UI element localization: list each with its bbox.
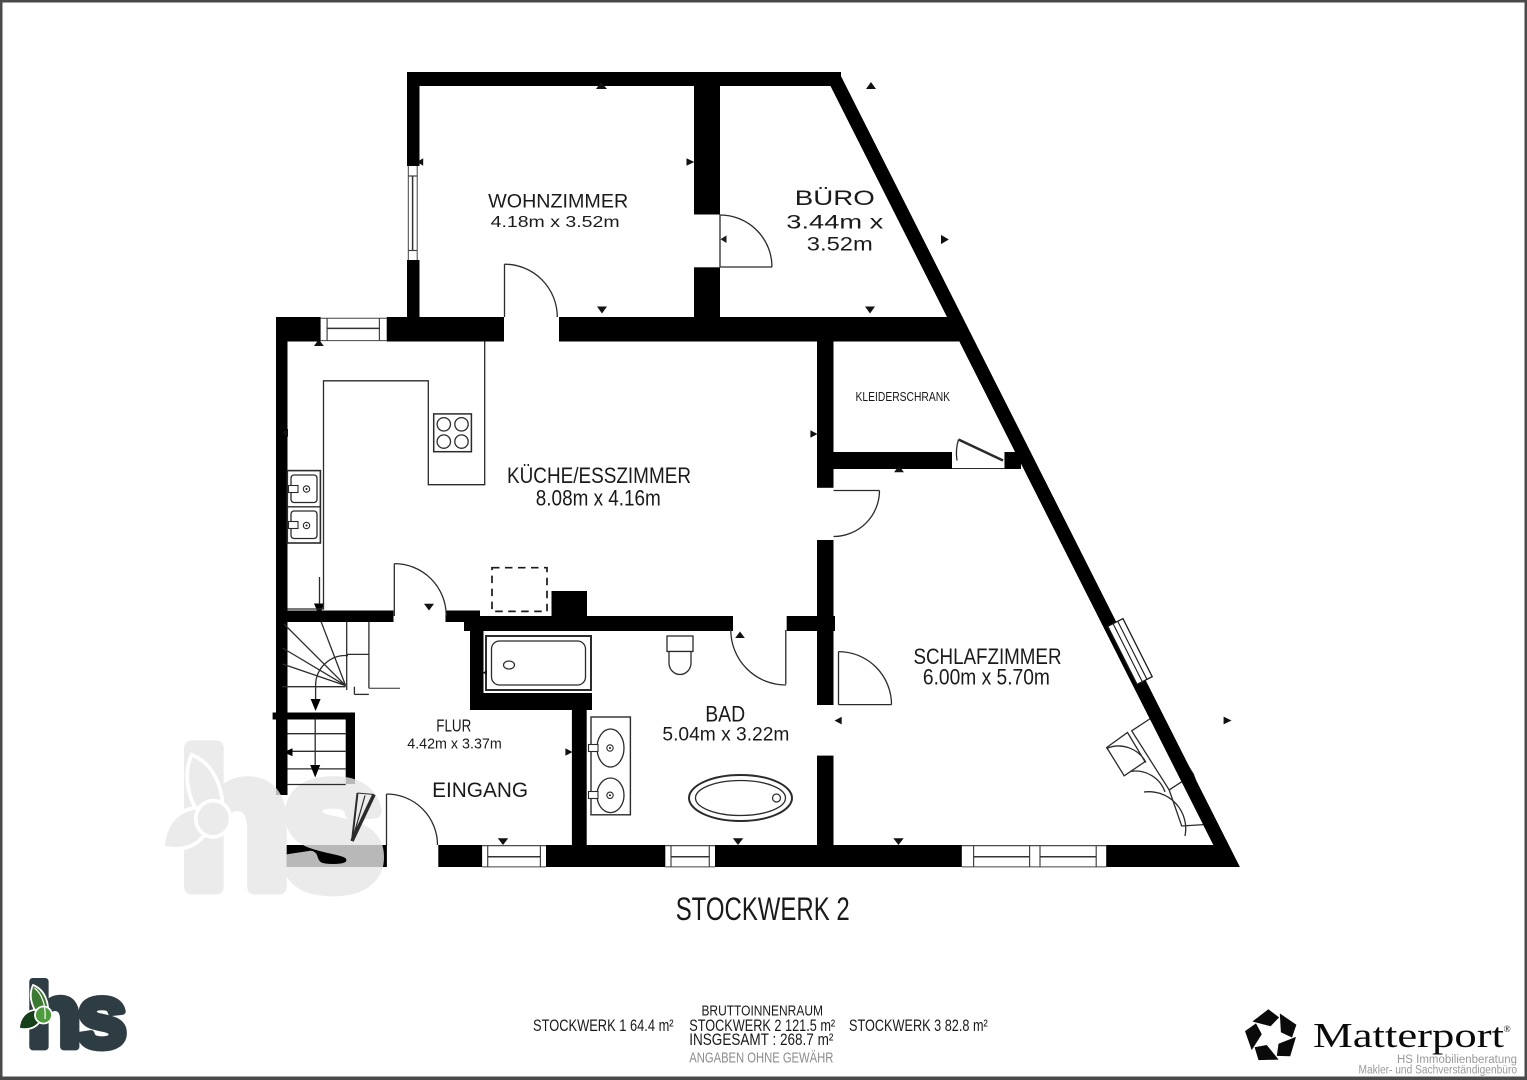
- svg-text:STOCKWERK 3 82.8 m²: STOCKWERK 3 82.8 m²: [849, 1016, 988, 1035]
- svg-text:Makler- und Sachverständigenbü: Makler- und Sachverständigenbüro: [1359, 1065, 1518, 1077]
- svg-text:6.00m x 5.70m: 6.00m x 5.70m: [923, 665, 1050, 690]
- svg-text:3.44m x: 3.44m x: [786, 213, 884, 234]
- svg-text:INSGESAMT : 268.7 m²: INSGESAMT : 268.7 m²: [689, 1030, 833, 1049]
- svg-text:EINGANG: EINGANG: [432, 779, 528, 802]
- svg-text:5.04m x 3.22m: 5.04m x 3.22m: [662, 725, 789, 746]
- svg-text:KÜCHE/ESSZIMMER: KÜCHE/ESSZIMMER: [507, 463, 691, 488]
- svg-text:3.52m: 3.52m: [807, 234, 873, 255]
- svg-text:KLEIDERSCHRANK: KLEIDERSCHRANK: [856, 389, 951, 404]
- svg-text:4.42m x 3.37m: 4.42m x 3.37m: [407, 736, 502, 752]
- svg-text:BÜRO: BÜRO: [795, 186, 875, 210]
- svg-text:STOCKWERK 2: STOCKWERK 2: [676, 891, 850, 927]
- svg-text:8.08m x 4.16m: 8.08m x 4.16m: [536, 486, 661, 511]
- svg-text:FLUR: FLUR: [436, 716, 471, 736]
- svg-text:®: ®: [1504, 1024, 1511, 1035]
- svg-text:STOCKWERK 1 64.4 m²: STOCKWERK 1 64.4 m²: [533, 1016, 674, 1035]
- svg-text:4.18m x 3.52m: 4.18m x 3.52m: [491, 214, 620, 231]
- svg-text:ANGABEN OHNE GEWÄHR: ANGABEN OHNE GEWÄHR: [689, 1050, 833, 1067]
- svg-text:BAD: BAD: [705, 702, 745, 727]
- svg-text:Matterport: Matterport: [1313, 1016, 1504, 1055]
- svg-text:WOHNZIMMER: WOHNZIMMER: [488, 191, 628, 213]
